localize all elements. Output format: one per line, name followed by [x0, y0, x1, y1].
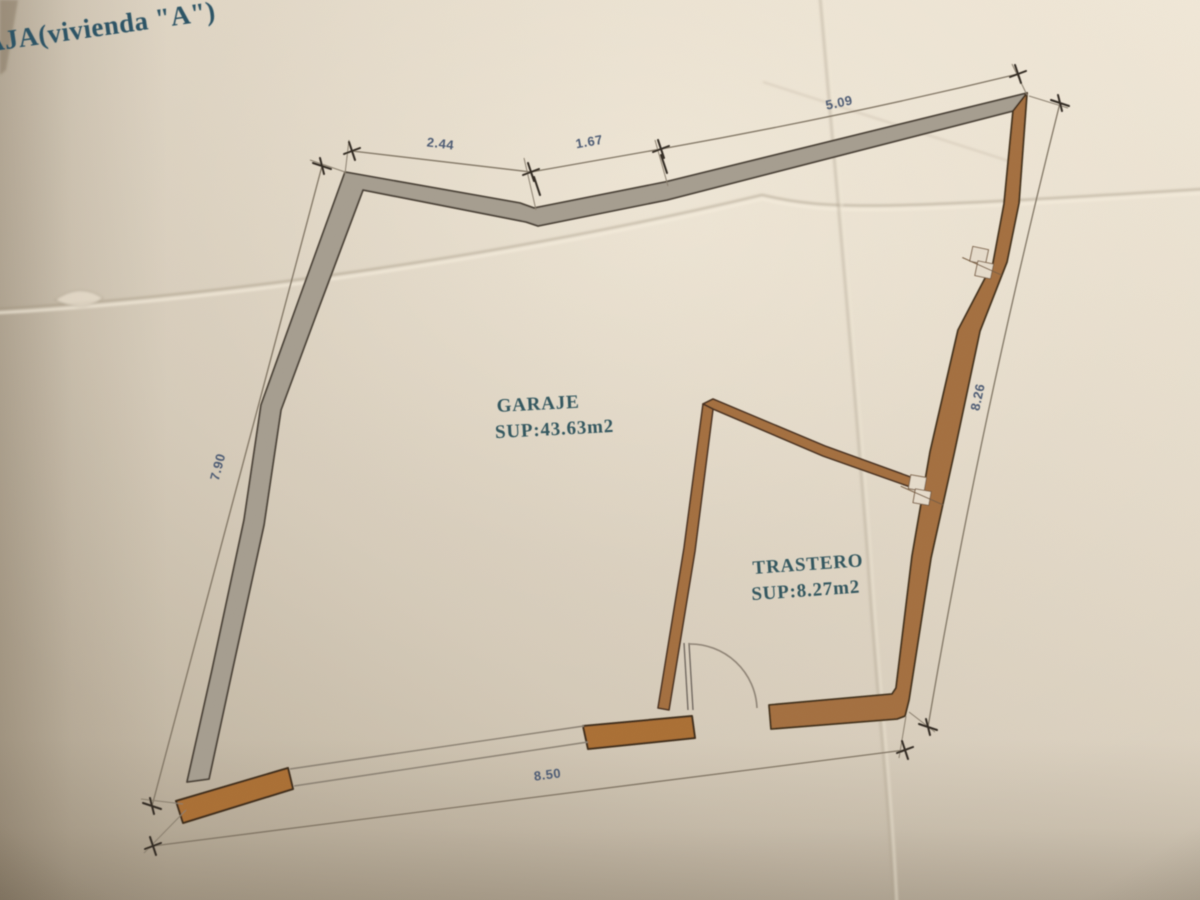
photo-vignette — [0, 0, 1200, 900]
floor-plan-photo: AJA(vivienda "A") GARAJE SUP:43.63m2 TRA… — [0, 0, 1200, 900]
floor-plan-svg: AJA(vivienda "A") GARAJE SUP:43.63m2 TRA… — [0, 0, 1200, 900]
